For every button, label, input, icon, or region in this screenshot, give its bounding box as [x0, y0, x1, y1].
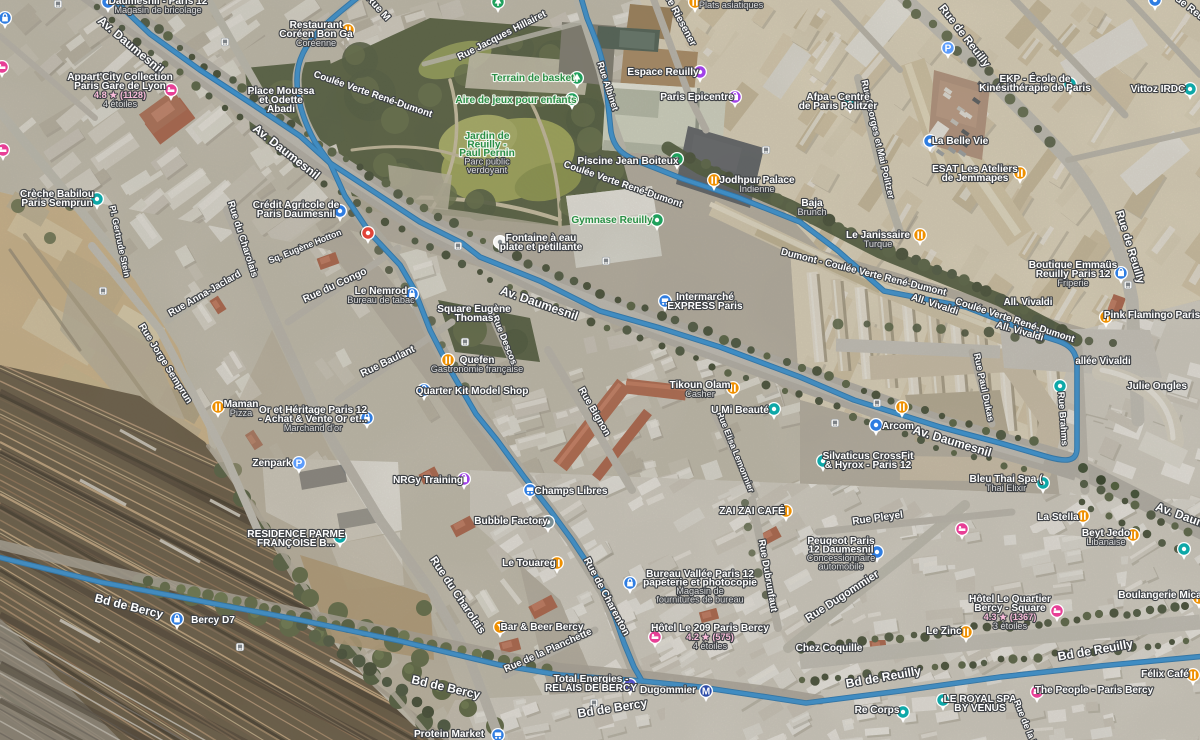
svg-text:M: M	[702, 687, 710, 698]
svg-text:& Hyrox - Paris 12: & Hyrox - Paris 12	[825, 460, 912, 471]
svg-text:Julie Ongles: Julie Ongles	[1127, 381, 1187, 392]
svg-text:EXPRESS Paris: EXPRESS Paris	[667, 301, 743, 312]
svg-text:Re Corps: Re Corps	[855, 705, 900, 716]
svg-text:All. Vivaldi: All. Vivaldi	[1004, 297, 1053, 308]
svg-text:Casher: Casher	[685, 389, 715, 399]
svg-text:3 étoiles: 3 étoiles	[993, 621, 1028, 631]
svg-text:Pink Flamingo Paris: Pink Flamingo Paris	[1104, 310, 1200, 321]
svg-text:de Paris Politzer: de Paris Politzer	[799, 101, 878, 112]
svg-text:Friperie: Friperie	[1057, 278, 1088, 288]
svg-text:Dugommier: Dugommier	[640, 685, 696, 696]
svg-text:ZAI ZAI CAFÉ: ZAI ZAI CAFÉ	[719, 504, 785, 517]
svg-text:Quarter Kit Model Shop: Quarter Kit Model Shop	[416, 386, 529, 397]
svg-text:La Belle Vie: La Belle Vie	[932, 136, 989, 147]
svg-text:Bubble Factory: Bubble Factory	[474, 516, 548, 527]
svg-text:RELAIS DE BERCY: RELAIS DE BERCY	[545, 683, 637, 694]
svg-text:4 étoiles: 4 étoiles	[103, 99, 138, 109]
svg-text:Abadi: Abadi	[267, 104, 295, 115]
svg-text:Pizza: Pizza	[230, 408, 253, 418]
svg-text:Turque: Turque	[864, 239, 893, 249]
svg-text:Coréenne: Coréenne	[296, 38, 336, 48]
svg-text:fournitures de bureau: fournitures de bureau	[656, 595, 743, 605]
svg-text:plate et pétillante: plate et pétillante	[500, 242, 583, 253]
svg-text:Paris Daumesnil: Paris Daumesnil	[257, 209, 336, 220]
svg-text:The People - Paris Bercy: The People - Paris Bercy	[1035, 685, 1154, 696]
svg-text:NRGy Training: NRGy Training	[393, 475, 463, 486]
svg-text:U Mi Beauté: U Mi Beauté	[711, 405, 769, 416]
svg-text:Champs Libres: Champs Libres	[535, 486, 608, 497]
svg-text:Bureau de tabac: Bureau de tabac	[347, 295, 415, 305]
svg-text:Chez Coquille: Chez Coquille	[796, 643, 863, 654]
svg-text:Thai Elixir: Thai Elixir	[986, 483, 1026, 493]
svg-text:Félix Café: Félix Café	[1141, 669, 1189, 680]
svg-text:Bar & Beer Bercy: Bar & Beer Bercy	[500, 622, 583, 633]
svg-text:Piscine Jean Boiteux: Piscine Jean Boiteux	[578, 156, 679, 167]
svg-text:verdoyant: verdoyant	[467, 165, 508, 175]
svg-text:Thomas: Thomas	[455, 313, 494, 324]
svg-text:Zenpark: Zenpark	[252, 458, 292, 469]
svg-text:P: P	[945, 44, 952, 55]
svg-text:allée Vivaldi: allée Vivaldi	[1075, 356, 1130, 367]
svg-text:Vittoz IRDC: Vittoz IRDC	[1131, 84, 1186, 95]
svg-text:Terrain de basket: Terrain de basket	[492, 73, 575, 84]
svg-text:Le Touareg: Le Touareg	[502, 558, 556, 569]
svg-text:Marchand d'or: Marchand d'or	[284, 423, 342, 433]
svg-text:Protein Market: Protein Market	[414, 729, 485, 740]
svg-text:automobile: automobile	[819, 562, 864, 572]
svg-text:La Stella: La Stella	[1037, 512, 1079, 523]
svg-text:Gastronomie française: Gastronomie française	[431, 364, 523, 374]
svg-text:Gymnase Reuilly: Gymnase Reuilly	[571, 215, 653, 226]
svg-text:Arcom: Arcom	[882, 421, 914, 432]
svg-text:Libanaise: Libanaise	[1086, 537, 1125, 547]
svg-text:Bercy D7: Bercy D7	[191, 615, 235, 626]
svg-text:Paris Epicentre: Paris Epicentre	[660, 92, 734, 103]
svg-text:4 étoiles: 4 étoiles	[693, 641, 728, 651]
svg-text:Aire de jeux pour enfants: Aire de jeux pour enfants	[455, 95, 577, 106]
svg-text:de Jemmapes: de Jemmapes	[942, 173, 1009, 184]
svg-text:Kinésithérapie de Paris: Kinésithérapie de Paris	[979, 83, 1091, 94]
svg-text:FRANÇOISE B...: FRANÇOISE B...	[257, 538, 335, 549]
svg-text:Brunch: Brunch	[797, 207, 826, 217]
svg-text:Boulangerie Mica: Boulangerie Mica	[1118, 590, 1200, 601]
svg-text:Indienne: Indienne	[739, 184, 774, 194]
svg-text:Plats asiatiques: Plats asiatiques	[699, 0, 764, 10]
svg-text:Magasin de bricolage: Magasin de bricolage	[114, 5, 201, 15]
svg-text:P: P	[296, 459, 303, 470]
svg-text:Paris Semprun: Paris Semprun	[21, 198, 92, 209]
svg-text:Espace Reuilly: Espace Reuilly	[627, 67, 699, 78]
svg-text:Le Zinc: Le Zinc	[926, 626, 962, 637]
svg-text:BY VENUS: BY VENUS	[954, 703, 1006, 714]
